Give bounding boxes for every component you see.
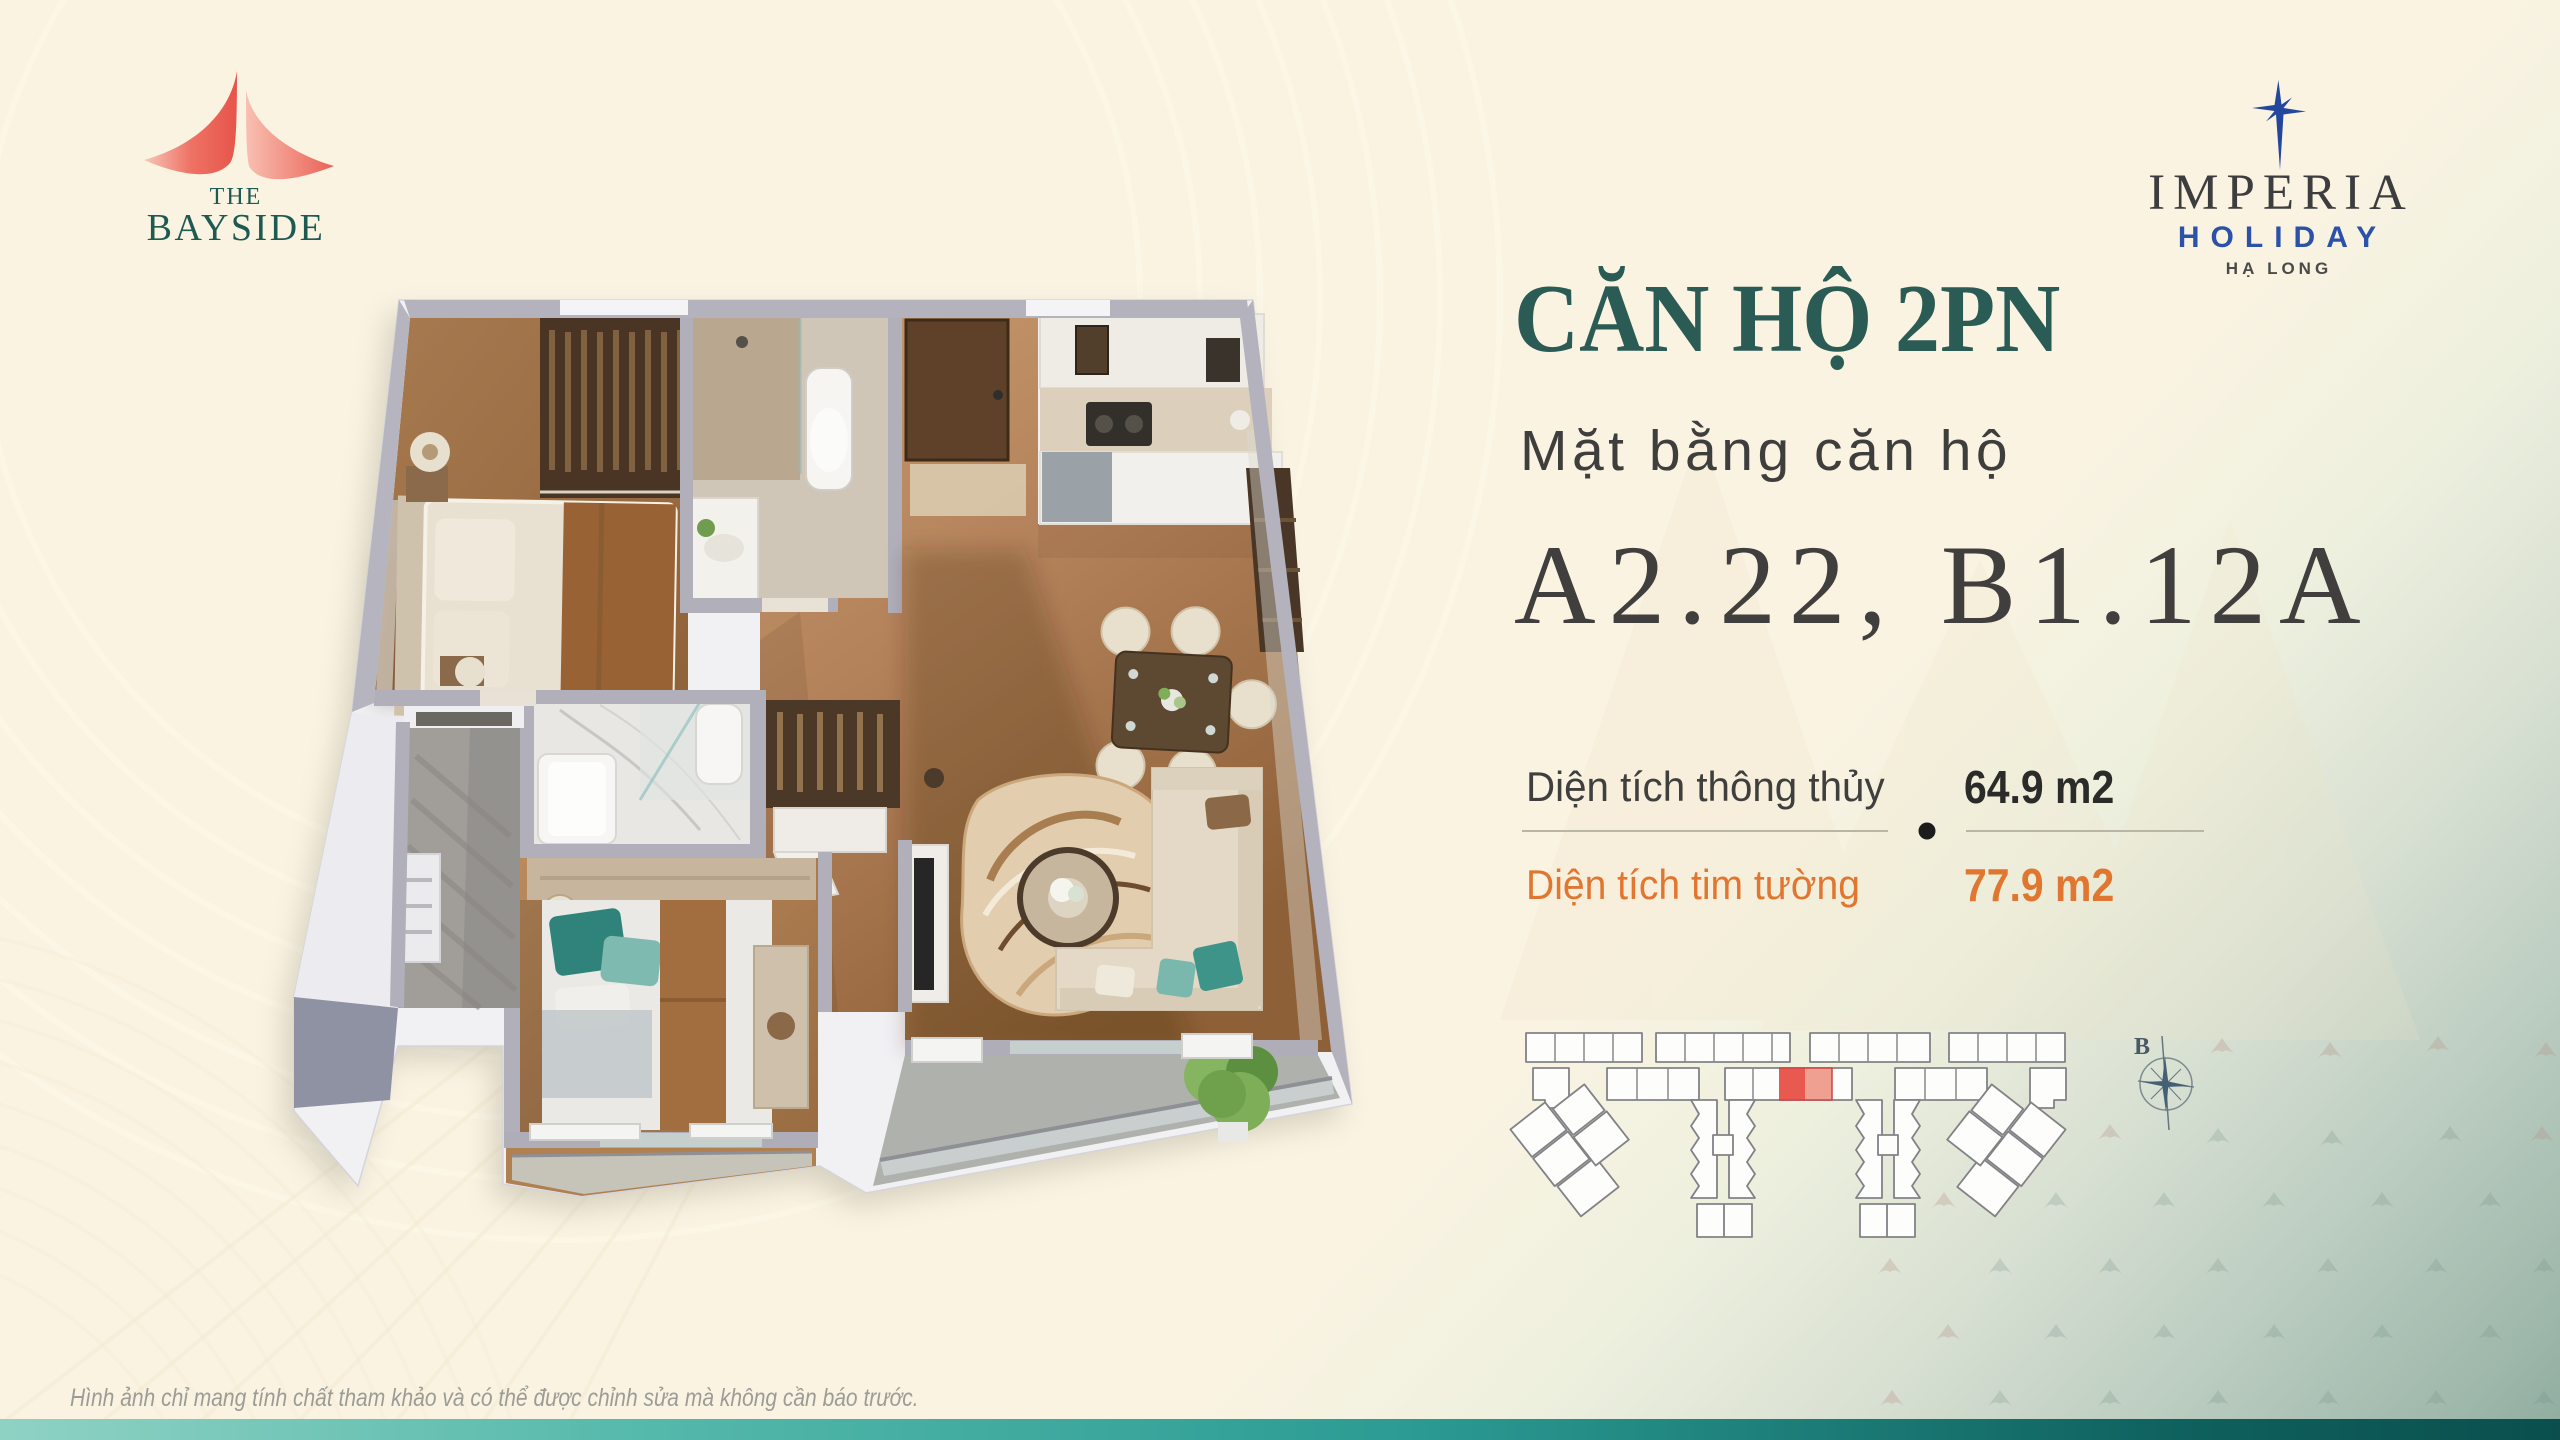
svg-text:B: B (2134, 1034, 2150, 1060)
